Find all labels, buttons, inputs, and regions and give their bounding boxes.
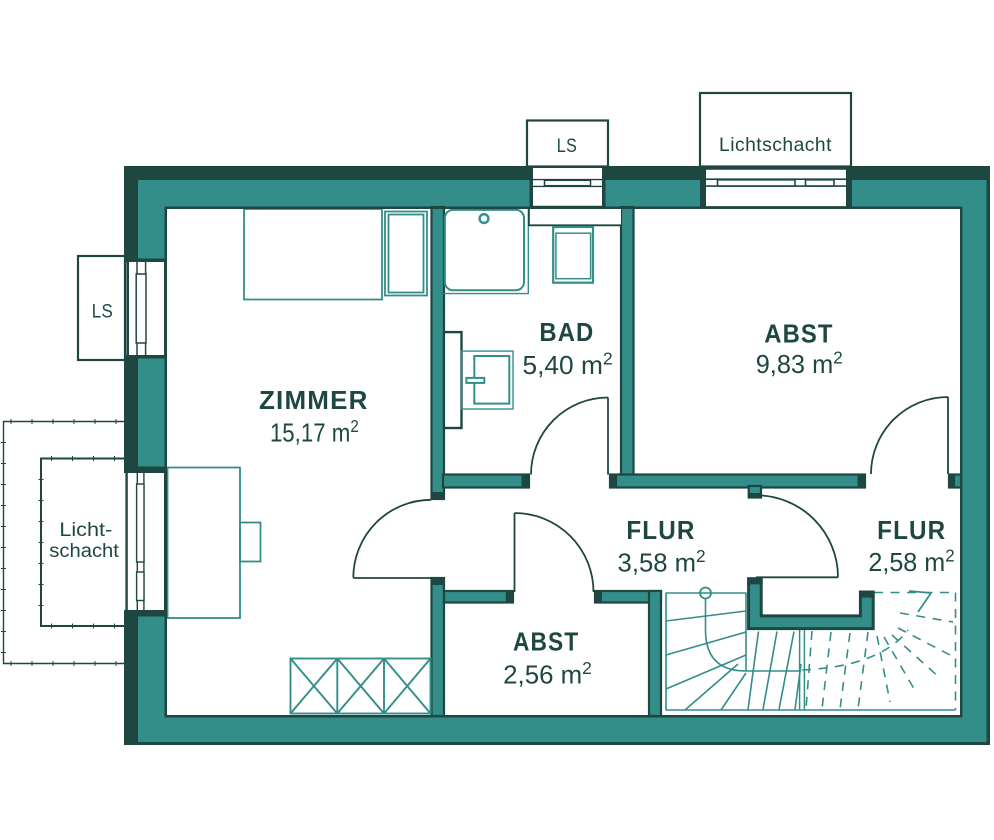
svg-text:BAD: BAD	[539, 317, 594, 347]
svg-text:ABST: ABST	[764, 318, 833, 348]
svg-text:9,83 m2: 9,83 m2	[756, 348, 843, 380]
svg-text:LS: LS	[92, 301, 114, 323]
svg-text:ABST: ABST	[513, 626, 579, 656]
svg-text:2,56 m2: 2,56 m2	[503, 658, 592, 690]
svg-text:2,58 m2: 2,58 m2	[868, 546, 954, 578]
svg-text:LS: LS	[557, 135, 577, 157]
svg-text:15,17 m2: 15,17 m2	[270, 416, 359, 448]
svg-text:Lichtschacht: Lichtschacht	[719, 134, 832, 156]
svg-text:5,40 m2: 5,40 m2	[523, 349, 613, 381]
svg-text:Licht-: Licht-	[59, 520, 112, 541]
svg-text:FLUR: FLUR	[626, 515, 695, 545]
svg-text:schacht: schacht	[49, 541, 119, 562]
svg-text:FLUR: FLUR	[877, 515, 946, 545]
svg-text:3,58 m2: 3,58 m2	[618, 546, 706, 578]
svg-text:ZIMMER: ZIMMER	[259, 385, 369, 415]
